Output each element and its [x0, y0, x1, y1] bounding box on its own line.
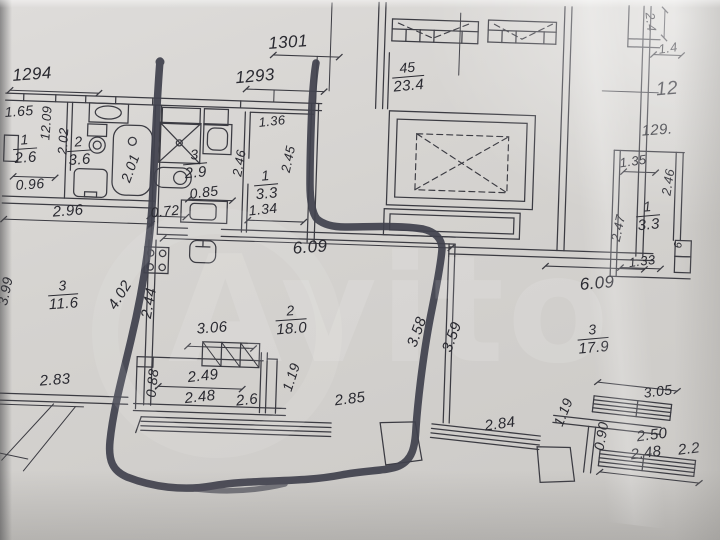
dim-label: 6 [673, 241, 685, 248]
room-label: 13.3 [635, 198, 662, 233]
dim-label: 12 [655, 79, 679, 100]
dim-label: 2.2 [677, 440, 701, 458]
room-label: 13.3 [253, 167, 280, 202]
staircase [376, 2, 557, 114]
watermark-text: Avito [168, 224, 612, 396]
dim-label: 2.83 [39, 371, 71, 388]
room-number: 1 [12, 131, 37, 149]
washer-icon [73, 168, 107, 197]
dim-label: 2.48 [630, 444, 662, 463]
room-label: 317.9 [576, 321, 610, 357]
dim-label: 2.4 [644, 12, 659, 33]
dim-label: 3.05 [643, 382, 673, 399]
dim-label: 3.06 [196, 319, 228, 336]
dim-label: 2.50 [636, 426, 668, 445]
dim-label: 1301 [268, 32, 309, 52]
dim-label: 1.4 [658, 40, 679, 56]
room-area: 23.4 [392, 76, 425, 95]
room-number: 2 [66, 133, 91, 151]
room-area: 3.3 [636, 215, 661, 234]
room-label: 12.6 [12, 131, 38, 166]
dim-label: 0.88 [144, 368, 161, 398]
dim-label: 129. [641, 121, 673, 138]
dim-label: 1294 [12, 64, 53, 84]
dimension-extensions [246, 0, 341, 104]
dim-label: 2.6 [235, 391, 259, 408]
room-area: 17.9 [578, 338, 610, 357]
dim-label: 1.34 [248, 201, 278, 218]
dim-label: 2.49 [187, 367, 219, 385]
dim-label: 0.96 [15, 176, 45, 192]
room-label: 23.6 [66, 133, 92, 168]
room-area: 3.3 [254, 184, 279, 203]
dim-label: 0.72 [150, 203, 180, 220]
room-area: 3.6 [67, 150, 92, 168]
dim-label: 1293 [235, 66, 276, 86]
toilet-icon [87, 124, 106, 137]
dim-label: 2.84 [484, 414, 517, 433]
room-area: 2.6 [13, 148, 38, 166]
dim-label: 2.46 [659, 168, 676, 197]
dim-label: 12.09 [38, 105, 53, 140]
room-label: 311.6 [47, 277, 79, 312]
dim-label: 1.33 [628, 253, 656, 269]
room-area: 18.0 [276, 319, 308, 338]
dim-label: 1.65 [4, 103, 34, 119]
dim-label: 2.96 [52, 202, 84, 219]
room-area: 11.6 [48, 294, 79, 313]
dim-label: 2.85 [334, 390, 366, 409]
dim-label: 6.09 [579, 273, 615, 293]
cabinet-icon [204, 109, 229, 126]
dim-label: 6.09 [292, 237, 328, 256]
dim-label: 1.36 [258, 113, 286, 129]
room-area: 2.9 [183, 163, 208, 182]
shelf-icon [674, 256, 691, 273]
room-label: 32.9 [182, 146, 209, 181]
floor-plan-photo: Avito 12941.6512.092.022.010.962.9613011… [0, 0, 720, 540]
room-label: 4523.4 [391, 59, 425, 95]
room-label: 218.0 [274, 302, 307, 338]
dim-label: 0.85 [189, 183, 219, 200]
dim-label: 2.48 [184, 388, 216, 406]
dim-label: 1.35 [619, 153, 647, 170]
